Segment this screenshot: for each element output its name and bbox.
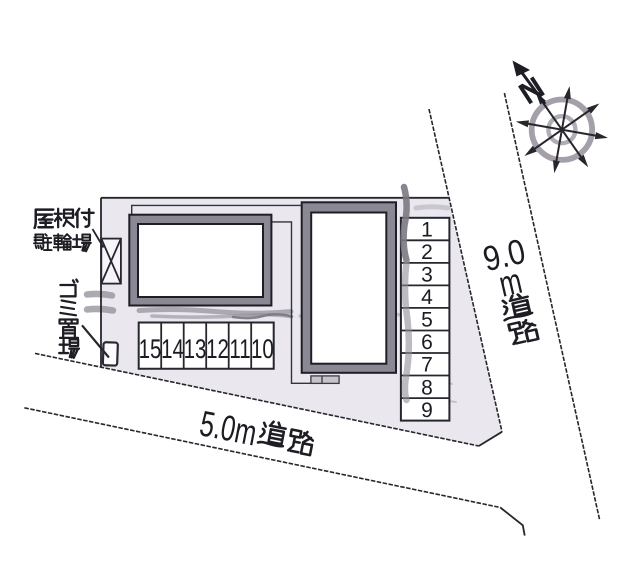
svg-text:13: 13	[184, 334, 207, 364]
svg-text:4: 4	[421, 286, 433, 309]
svg-text:6: 6	[421, 331, 433, 354]
svg-text:2: 2	[421, 241, 433, 264]
svg-text:8: 8	[421, 376, 433, 399]
svg-text:11: 11	[229, 334, 250, 364]
svg-text:3: 3	[421, 264, 433, 287]
svg-text:9: 9	[421, 399, 433, 422]
svg-text:12: 12	[206, 334, 229, 364]
svg-text:14: 14	[161, 334, 184, 364]
svg-text:5: 5	[421, 309, 433, 332]
svg-text:1: 1	[421, 219, 433, 242]
svg-text:15: 15	[139, 334, 162, 364]
svg-text:7: 7	[421, 354, 433, 377]
svg-text:10: 10	[251, 334, 274, 364]
